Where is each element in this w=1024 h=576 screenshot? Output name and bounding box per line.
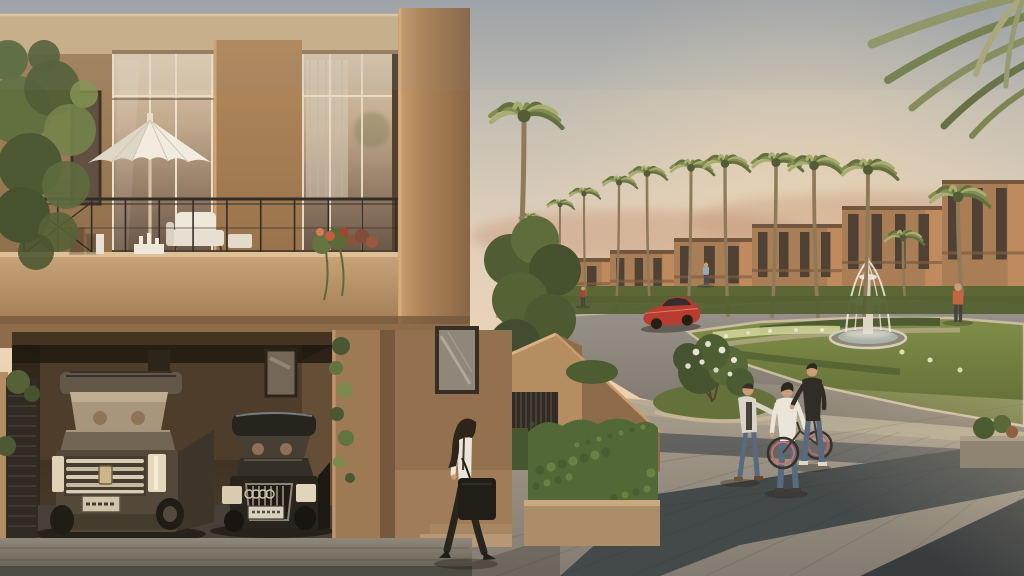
- architectural-render: [0, 0, 1024, 576]
- scene-canvas: [0, 0, 1024, 576]
- cool-top: [0, 0, 1024, 90]
- atmosphere: [0, 0, 1024, 576]
